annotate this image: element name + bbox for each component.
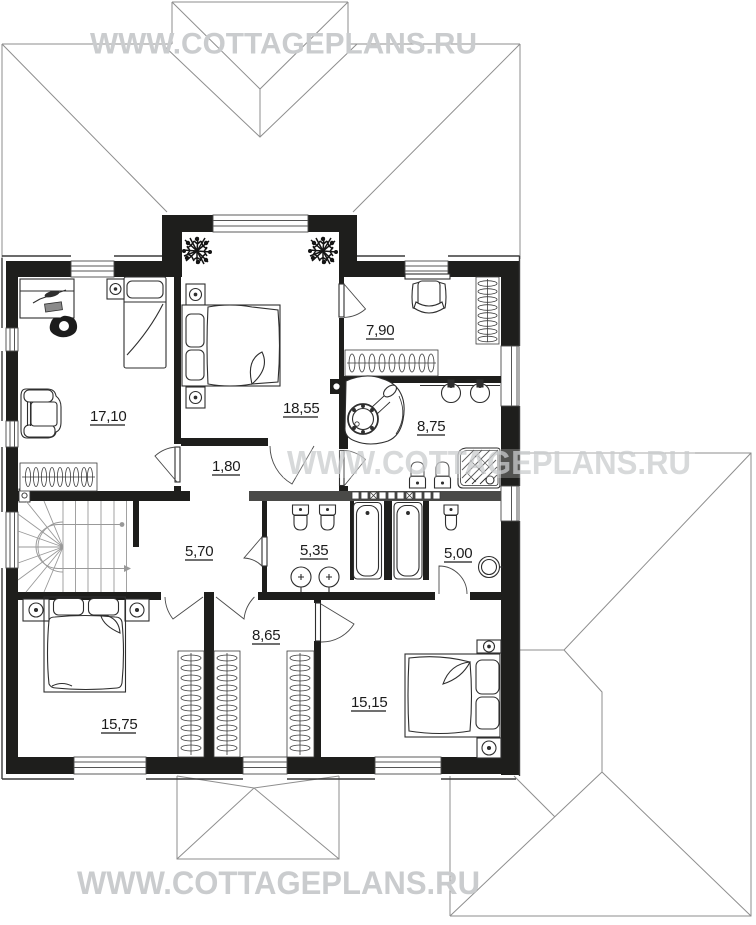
- svg-text:WWW.COTTAGEPLANS.RU: WWW.COTTAGEPLANS.RU: [287, 444, 691, 481]
- svg-text:WWW.COTTAGEPLANS.RU: WWW.COTTAGEPLANS.RU: [90, 28, 477, 61]
- svg-text:5,00: 5,00: [444, 545, 472, 562]
- svg-text:7,90: 7,90: [366, 322, 394, 339]
- svg-text:15,75: 15,75: [101, 716, 138, 733]
- svg-text:5,70: 5,70: [185, 543, 213, 560]
- svg-text:15,15: 15,15: [351, 694, 388, 711]
- svg-text:17,10: 17,10: [90, 408, 127, 425]
- svg-text:WWW.COTTAGEPLANS.RU: WWW.COTTAGEPLANS.RU: [77, 865, 480, 901]
- svg-text:8,75: 8,75: [417, 418, 445, 435]
- svg-text:8,65: 8,65: [252, 627, 280, 644]
- svg-text:18,55: 18,55: [283, 400, 320, 417]
- svg-text:1,80: 1,80: [212, 458, 240, 475]
- svg-text:5,35: 5,35: [300, 542, 328, 559]
